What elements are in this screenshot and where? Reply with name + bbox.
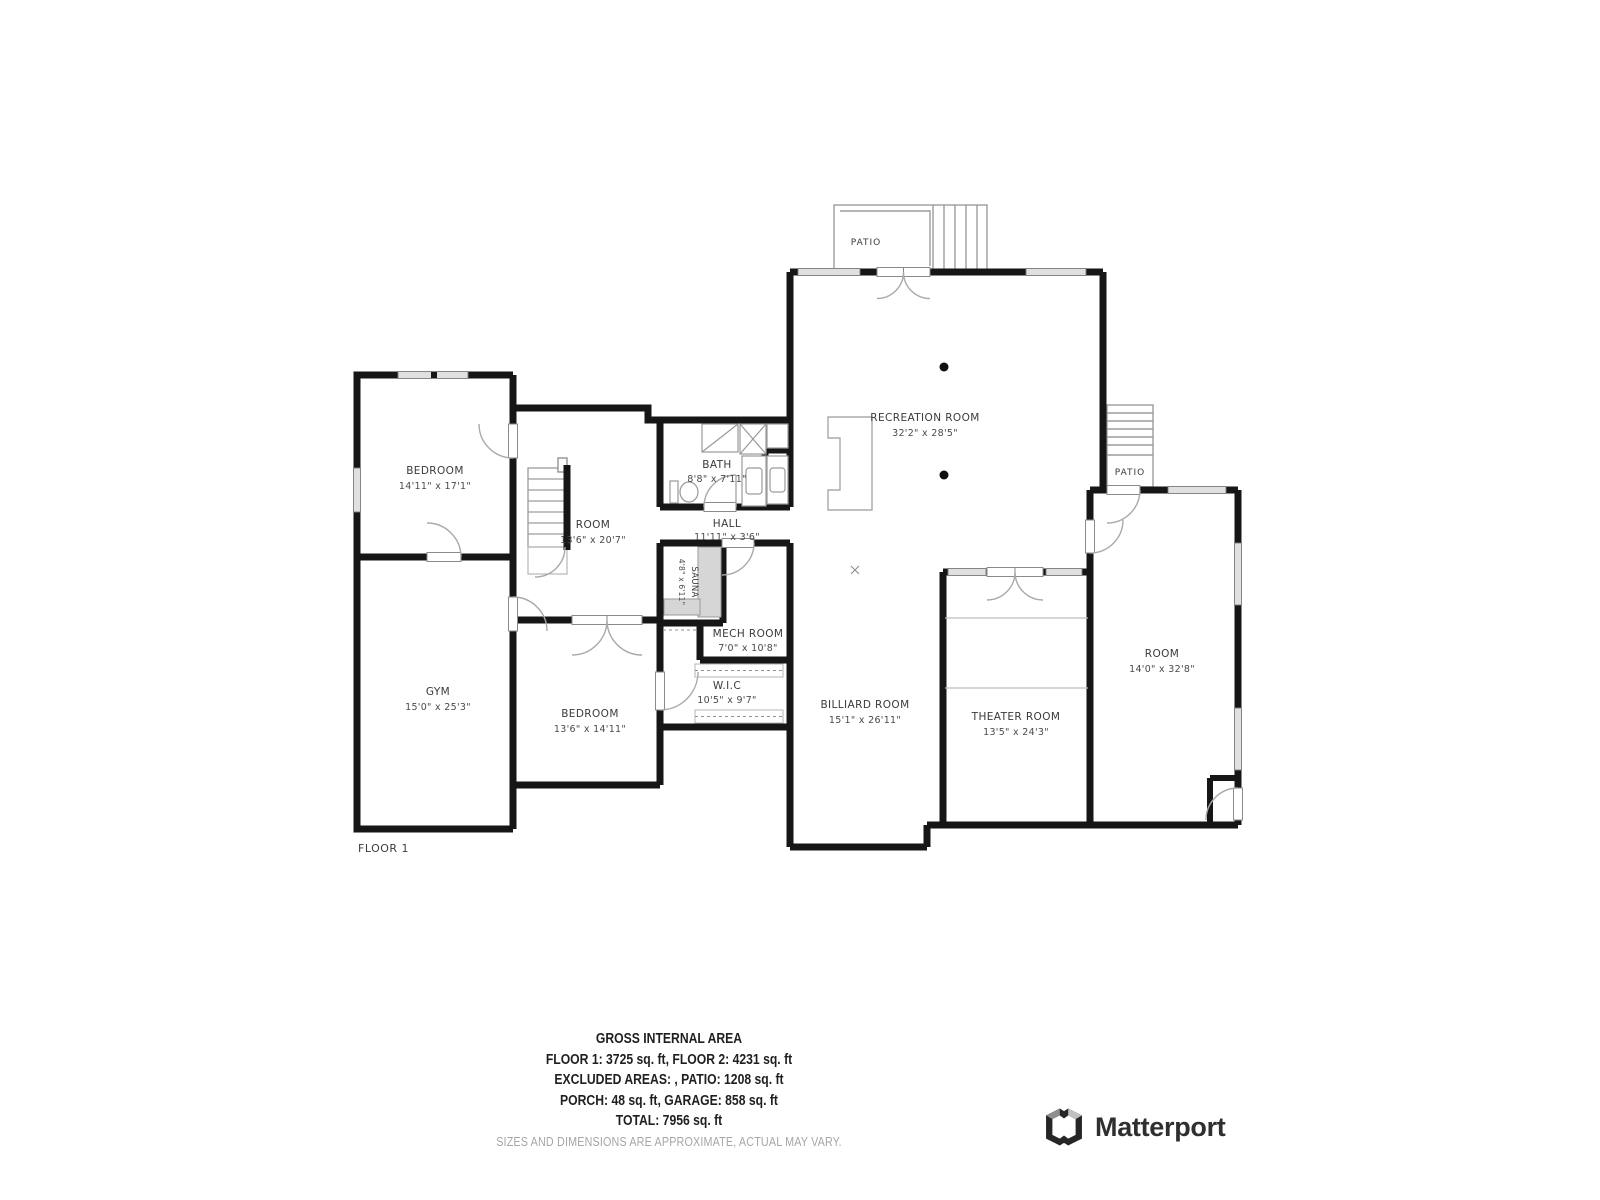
window-recreation-right <box>1026 269 1086 276</box>
summary-floors: FLOOR 1: 3725 sq. ft, FLOOR 2: 4231 sq. … <box>496 1050 842 1071</box>
dims-sauna: 4'8" x 6'11" <box>677 559 686 606</box>
label-mech-room: MECH ROOM <box>713 628 784 640</box>
column-dot-2 <box>940 471 949 480</box>
dims-room-2: 14'0" x 32'8" <box>1129 664 1195 675</box>
dims-gym: 15'0" x 25'3" <box>405 702 471 713</box>
window-bedroom1-left <box>354 468 361 512</box>
theater-platform-lines <box>945 618 1088 688</box>
label-sauna: SAUNA <box>689 566 699 597</box>
floorplan-page: PATIO RECREATION ROOM 32'2" x 28'5" BEDR… <box>0 0 1600 1200</box>
dims-bath: 8'8" x 7'11" <box>687 474 746 485</box>
label-room-2: ROOM <box>1145 648 1179 660</box>
dims-hall: 11'11" x 3'6" <box>694 532 760 543</box>
dims-wic: 10'5" x 9'7" <box>697 695 756 706</box>
label-wic: W.I.C <box>713 680 741 692</box>
kitchen-counter <box>828 417 872 510</box>
matterport-icon <box>1046 1108 1082 1146</box>
window-room2-top <box>1168 487 1226 494</box>
matterport-wordmark: Matterport <box>1095 1112 1226 1143</box>
dims-theater-room: 13'5" x 24'3" <box>983 727 1049 738</box>
vanity-sink <box>746 468 762 494</box>
dims-bedroom-1: 14'11" x 17'1" <box>399 481 471 492</box>
toilet-tank <box>670 481 678 503</box>
dims-mech-room: 7'0" x 10'8" <box>718 643 777 654</box>
walls <box>357 272 1238 847</box>
label-gym: GYM <box>426 686 450 698</box>
summary-excluded: EXCLUDED AREAS: , PATIO: 1208 sq. ft <box>496 1070 842 1091</box>
summary-porch-garage: PORCH: 48 sq. ft, GARAGE: 858 sq. ft <box>496 1091 842 1112</box>
summary-title: GROSS INTERNAL AREA <box>496 1029 842 1050</box>
dims-recreation-room: 32'2" x 28'5" <box>892 428 958 439</box>
label-billiard-room: BILLIARD ROOM <box>820 699 909 711</box>
label-hall: HALL <box>713 518 741 530</box>
label-bedroom-1: BEDROOM <box>406 465 464 477</box>
toilet-bowl <box>680 482 698 502</box>
dims-billiard-room: 15'1" x 26'11" <box>829 715 901 726</box>
window-theater-left <box>948 569 986 576</box>
dims-room-1: 13'6" x 20'7" <box>560 535 626 546</box>
area-summary: GROSS INTERNAL AREA FLOOR 1: 3725 sq. ft… <box>496 1029 842 1153</box>
interior-stairs <box>528 458 567 574</box>
label-room-1: ROOM <box>576 519 610 531</box>
door-leaves <box>427 268 1243 821</box>
label-bedroom-2: BEDROOM <box>561 708 619 720</box>
floorplan-drawing: PATIO RECREATION ROOM 32'2" x 28'5" BEDR… <box>0 0 1600 1200</box>
label-patio-top: PATIO <box>851 238 882 248</box>
column-dot-1 <box>940 363 949 372</box>
fixtures <box>670 417 872 510</box>
window-recreation-left <box>798 269 860 276</box>
door-arcs <box>427 272 1238 820</box>
window-room2-lower <box>1235 708 1242 770</box>
label-bath: BATH <box>702 459 731 471</box>
bar-sink <box>770 468 785 492</box>
label-patio-right: PATIO <box>1115 468 1146 478</box>
label-theater-room: THEATER ROOM <box>971 711 1061 723</box>
floor-mark <box>851 566 859 574</box>
window-room2-upper <box>1235 543 1242 605</box>
label-recreation-room: RECREATION ROOM <box>870 412 979 424</box>
summary-disclaimer: SIZES AND DIMENSIONS ARE APPROXIMATE, AC… <box>496 1132 842 1153</box>
summary-total: TOTAL: 7956 sq. ft <box>496 1111 842 1132</box>
bar-closet <box>767 424 788 448</box>
floor-label: FLOOR 1 <box>358 842 409 855</box>
matterport-logo: Matterport <box>1046 1108 1226 1146</box>
dims-bedroom-2: 13'6" x 14'11" <box>554 724 626 735</box>
window-theater-right <box>1046 569 1082 576</box>
windows <box>354 269 1242 771</box>
